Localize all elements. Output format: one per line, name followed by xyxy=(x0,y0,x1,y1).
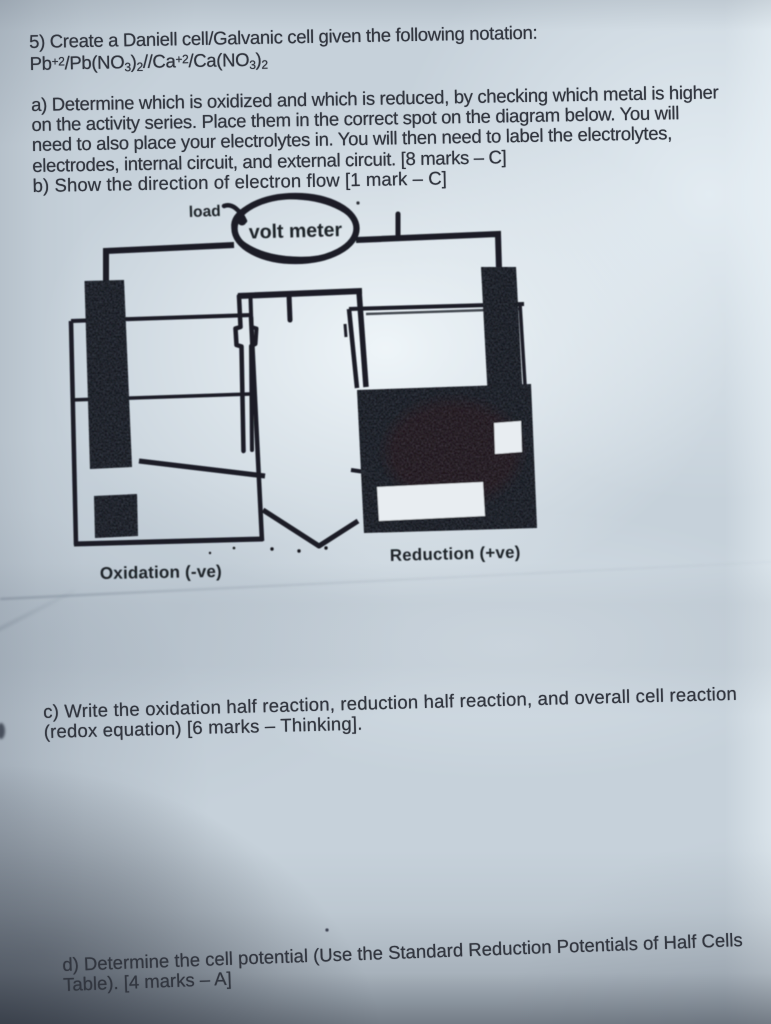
svg-text:Oxidation (-ve): Oxidation (-ve) xyxy=(100,562,222,583)
svg-text:Reduction (+ve): Reduction (+ve) xyxy=(390,543,521,565)
svg-text:load: load xyxy=(189,203,221,221)
svg-text:volt meter: volt meter xyxy=(249,219,343,243)
